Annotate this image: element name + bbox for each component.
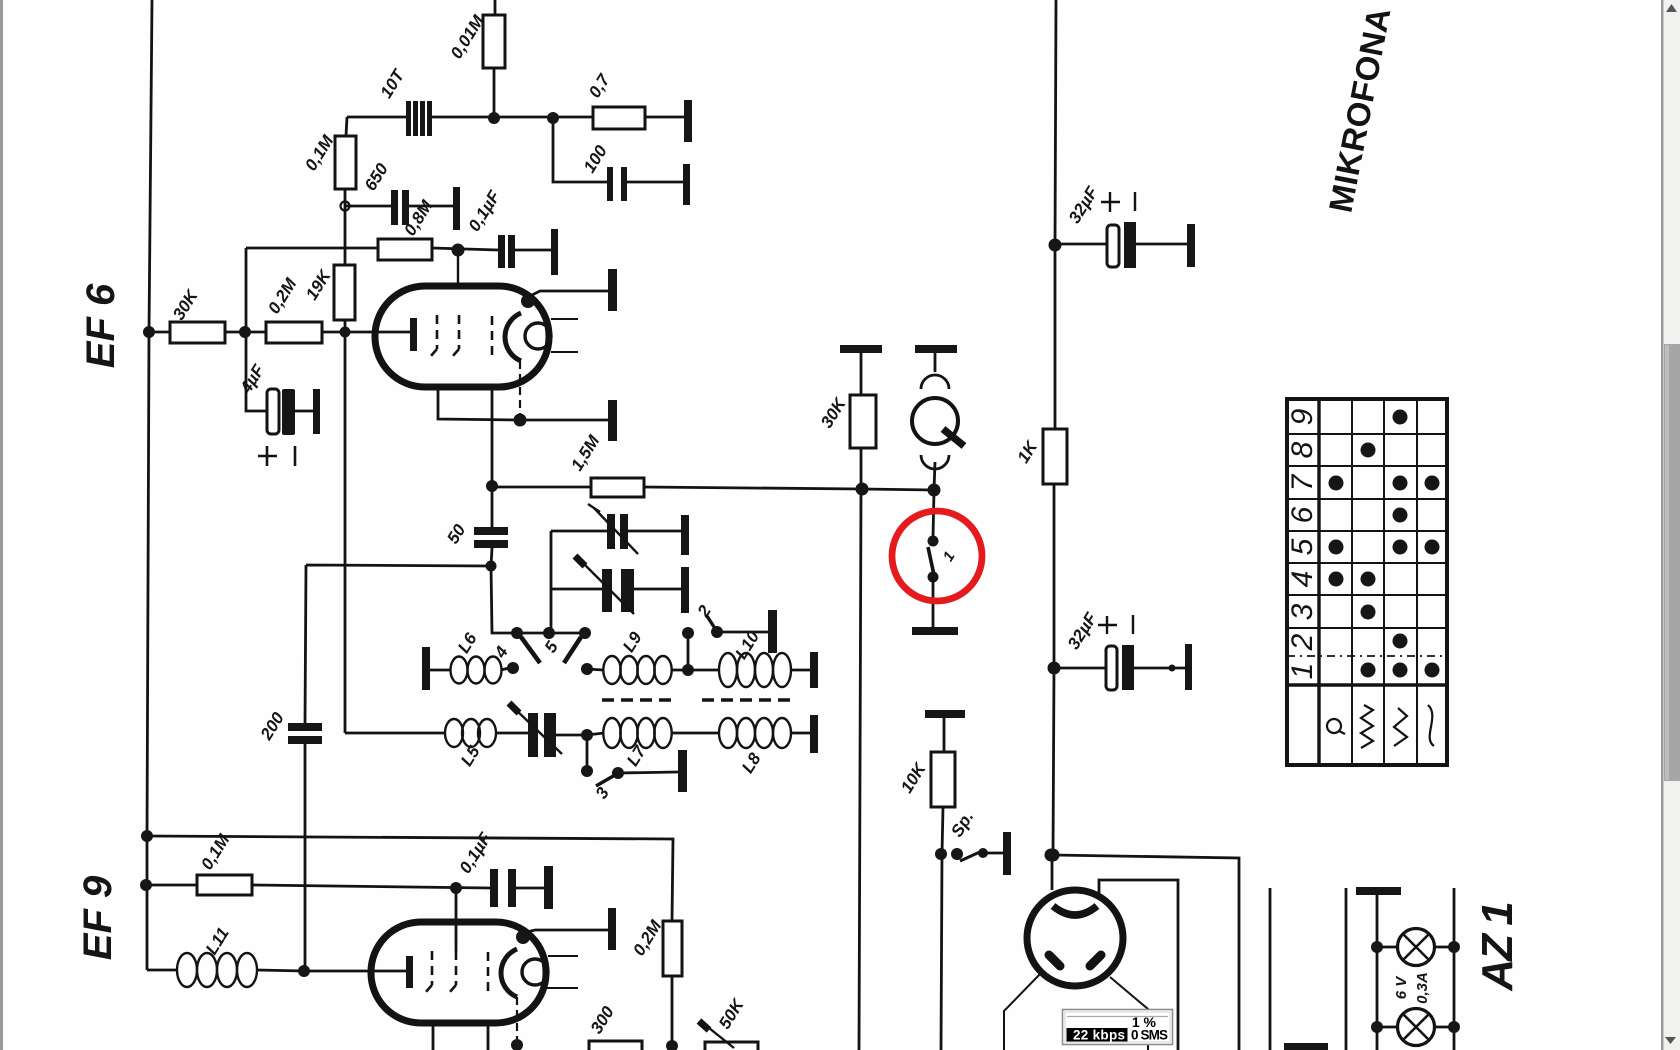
svg-text:1: 1 [1286,663,1319,680]
svg-text:2: 2 [1286,633,1319,651]
svg-text:22 kbps: 22 kbps [1073,1028,1125,1043]
svg-text:AZ 1: AZ 1 [1473,903,1522,992]
svg-text:8: 8 [1286,441,1319,458]
svg-text:0,3A: 0,3A [1414,972,1431,1004]
svg-text:7: 7 [1286,473,1319,491]
svg-text:4: 4 [1286,571,1319,588]
svg-text:6 V: 6 V [1393,975,1410,1000]
svg-text:EF 6: EF 6 [79,283,123,368]
svg-text:6: 6 [1286,506,1319,523]
svg-text:9: 9 [1286,408,1319,425]
svg-text:0 SMS: 0 SMS [1131,1028,1168,1043]
svg-text:3: 3 [1286,603,1319,620]
svg-text:5: 5 [1286,538,1319,555]
svg-text:EF 9: EF 9 [76,875,120,960]
